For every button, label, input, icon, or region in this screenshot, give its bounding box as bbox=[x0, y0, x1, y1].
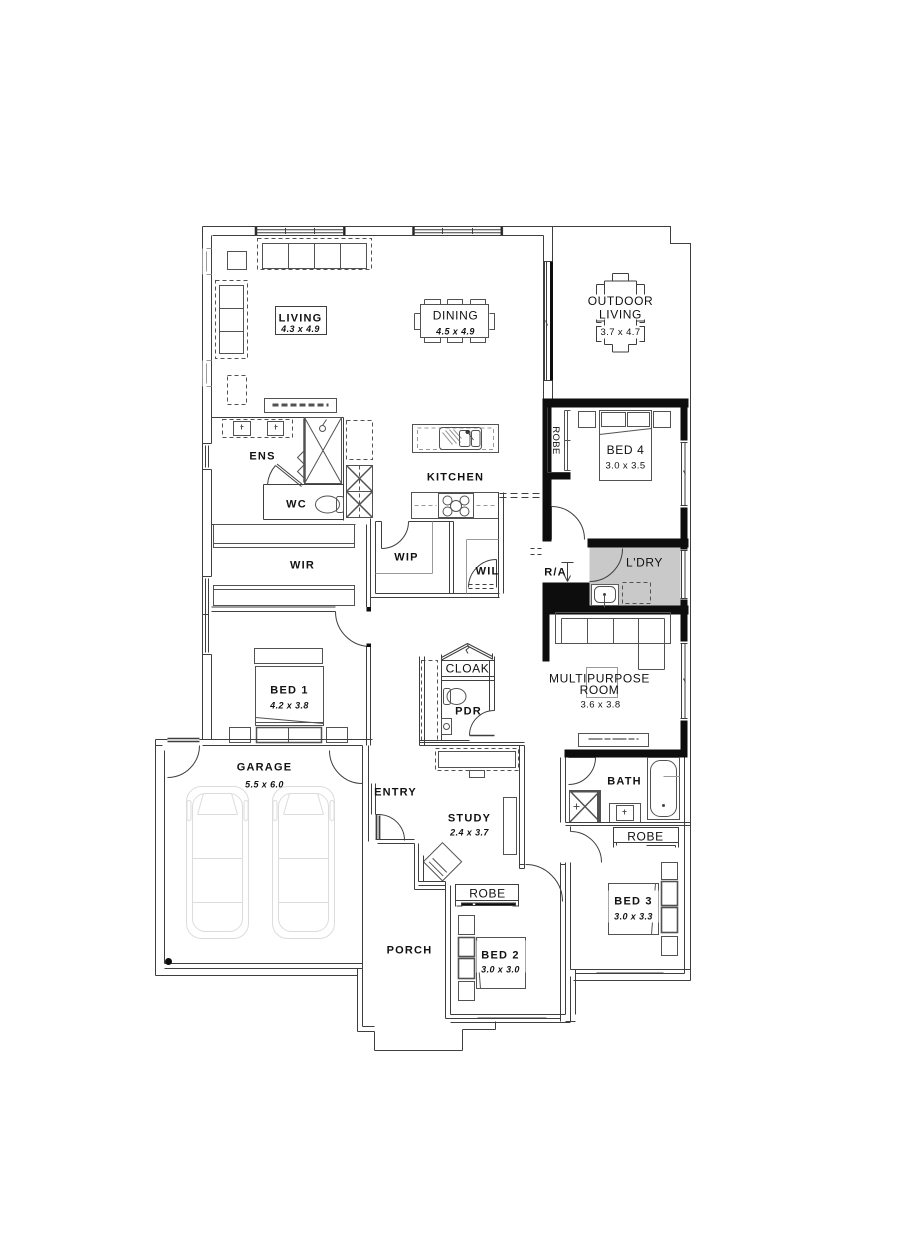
svg-text:WIL: WIL bbox=[476, 566, 500, 578]
svg-text:ROBE: ROBE bbox=[469, 887, 505, 901]
svg-text:PORCH: PORCH bbox=[387, 945, 433, 957]
svg-text:CLOAK: CLOAK bbox=[446, 662, 490, 676]
svg-text:3.7 x 4.7: 3.7 x 4.7 bbox=[600, 327, 640, 338]
svg-text:WIR: WIR bbox=[290, 560, 315, 572]
svg-text:BED 2: BED 2 bbox=[481, 950, 519, 962]
svg-text:OUTDOOR: OUTDOOR bbox=[588, 294, 654, 308]
svg-text:R/A: R/A bbox=[544, 567, 567, 579]
svg-text:BATH: BATH bbox=[607, 776, 642, 788]
svg-text:3.0 x 3.0: 3.0 x 3.0 bbox=[481, 965, 520, 975]
svg-text:ROBE: ROBE bbox=[627, 830, 663, 844]
svg-text:2.4 x 3.7: 2.4 x 3.7 bbox=[449, 828, 489, 838]
svg-text:LIVING: LIVING bbox=[279, 313, 323, 325]
svg-text:ROBE: ROBE bbox=[550, 426, 561, 455]
svg-text:BED 3: BED 3 bbox=[614, 896, 652, 908]
svg-text:ENS: ENS bbox=[249, 451, 275, 463]
svg-text:3.0 x 3.5: 3.0 x 3.5 bbox=[605, 461, 645, 472]
svg-text:4.5 x 4.9: 4.5 x 4.9 bbox=[435, 327, 475, 337]
svg-text:WC: WC bbox=[286, 499, 307, 511]
svg-text:PDR: PDR bbox=[455, 706, 482, 718]
svg-text:5.5 x 6.0: 5.5 x 6.0 bbox=[245, 780, 284, 790]
svg-text:4.3 x 4.9: 4.3 x 4.9 bbox=[280, 324, 320, 334]
svg-text:BED 4: BED 4 bbox=[607, 443, 645, 457]
svg-text:3.0 x 3.3: 3.0 x 3.3 bbox=[614, 912, 653, 922]
svg-text:BED 1: BED 1 bbox=[270, 685, 308, 697]
svg-text:ROOM: ROOM bbox=[580, 683, 620, 697]
svg-text:3.6 x 3.8: 3.6 x 3.8 bbox=[580, 700, 620, 711]
svg-text:WIP: WIP bbox=[394, 552, 418, 564]
svg-text:KITCHEN: KITCHEN bbox=[427, 472, 484, 484]
svg-text:STUDY: STUDY bbox=[448, 813, 491, 825]
svg-text:GARAGE: GARAGE bbox=[237, 762, 292, 774]
svg-text:4.2 x 3.8: 4.2 x 3.8 bbox=[269, 701, 309, 711]
svg-text:ENTRY: ENTRY bbox=[374, 787, 417, 799]
svg-text:DINING: DINING bbox=[433, 309, 479, 323]
svg-text:LIVING: LIVING bbox=[599, 308, 642, 322]
svg-text:L'DRY: L'DRY bbox=[626, 556, 663, 570]
